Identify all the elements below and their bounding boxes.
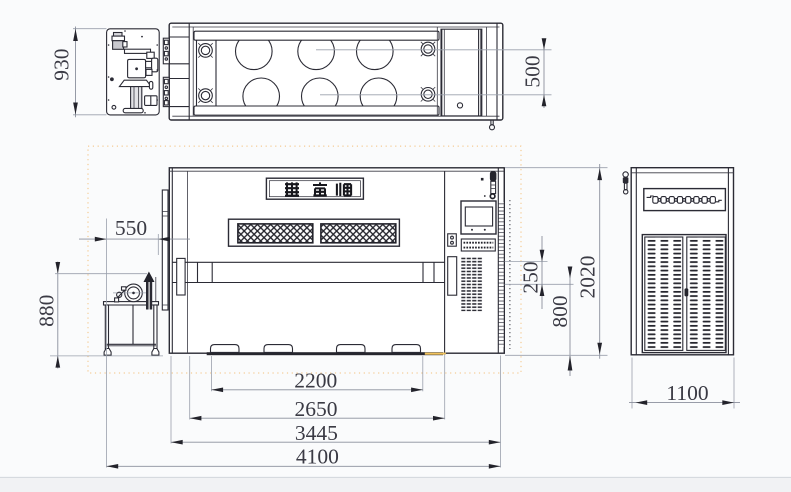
svg-text:800: 800 [548, 295, 572, 327]
svg-text:3445: 3445 [295, 421, 338, 445]
svg-text:880: 880 [35, 295, 59, 327]
svg-text:2020: 2020 [576, 256, 600, 299]
svg-text:930: 930 [50, 48, 74, 80]
svg-text:2200: 2200 [294, 368, 337, 392]
svg-text:2650: 2650 [295, 397, 338, 421]
svg-text:1100: 1100 [666, 381, 708, 405]
svg-text:4100: 4100 [296, 445, 339, 469]
svg-text:250: 250 [519, 261, 543, 293]
svg-text:500: 500 [521, 55, 545, 87]
svg-text:550: 550 [115, 216, 147, 240]
